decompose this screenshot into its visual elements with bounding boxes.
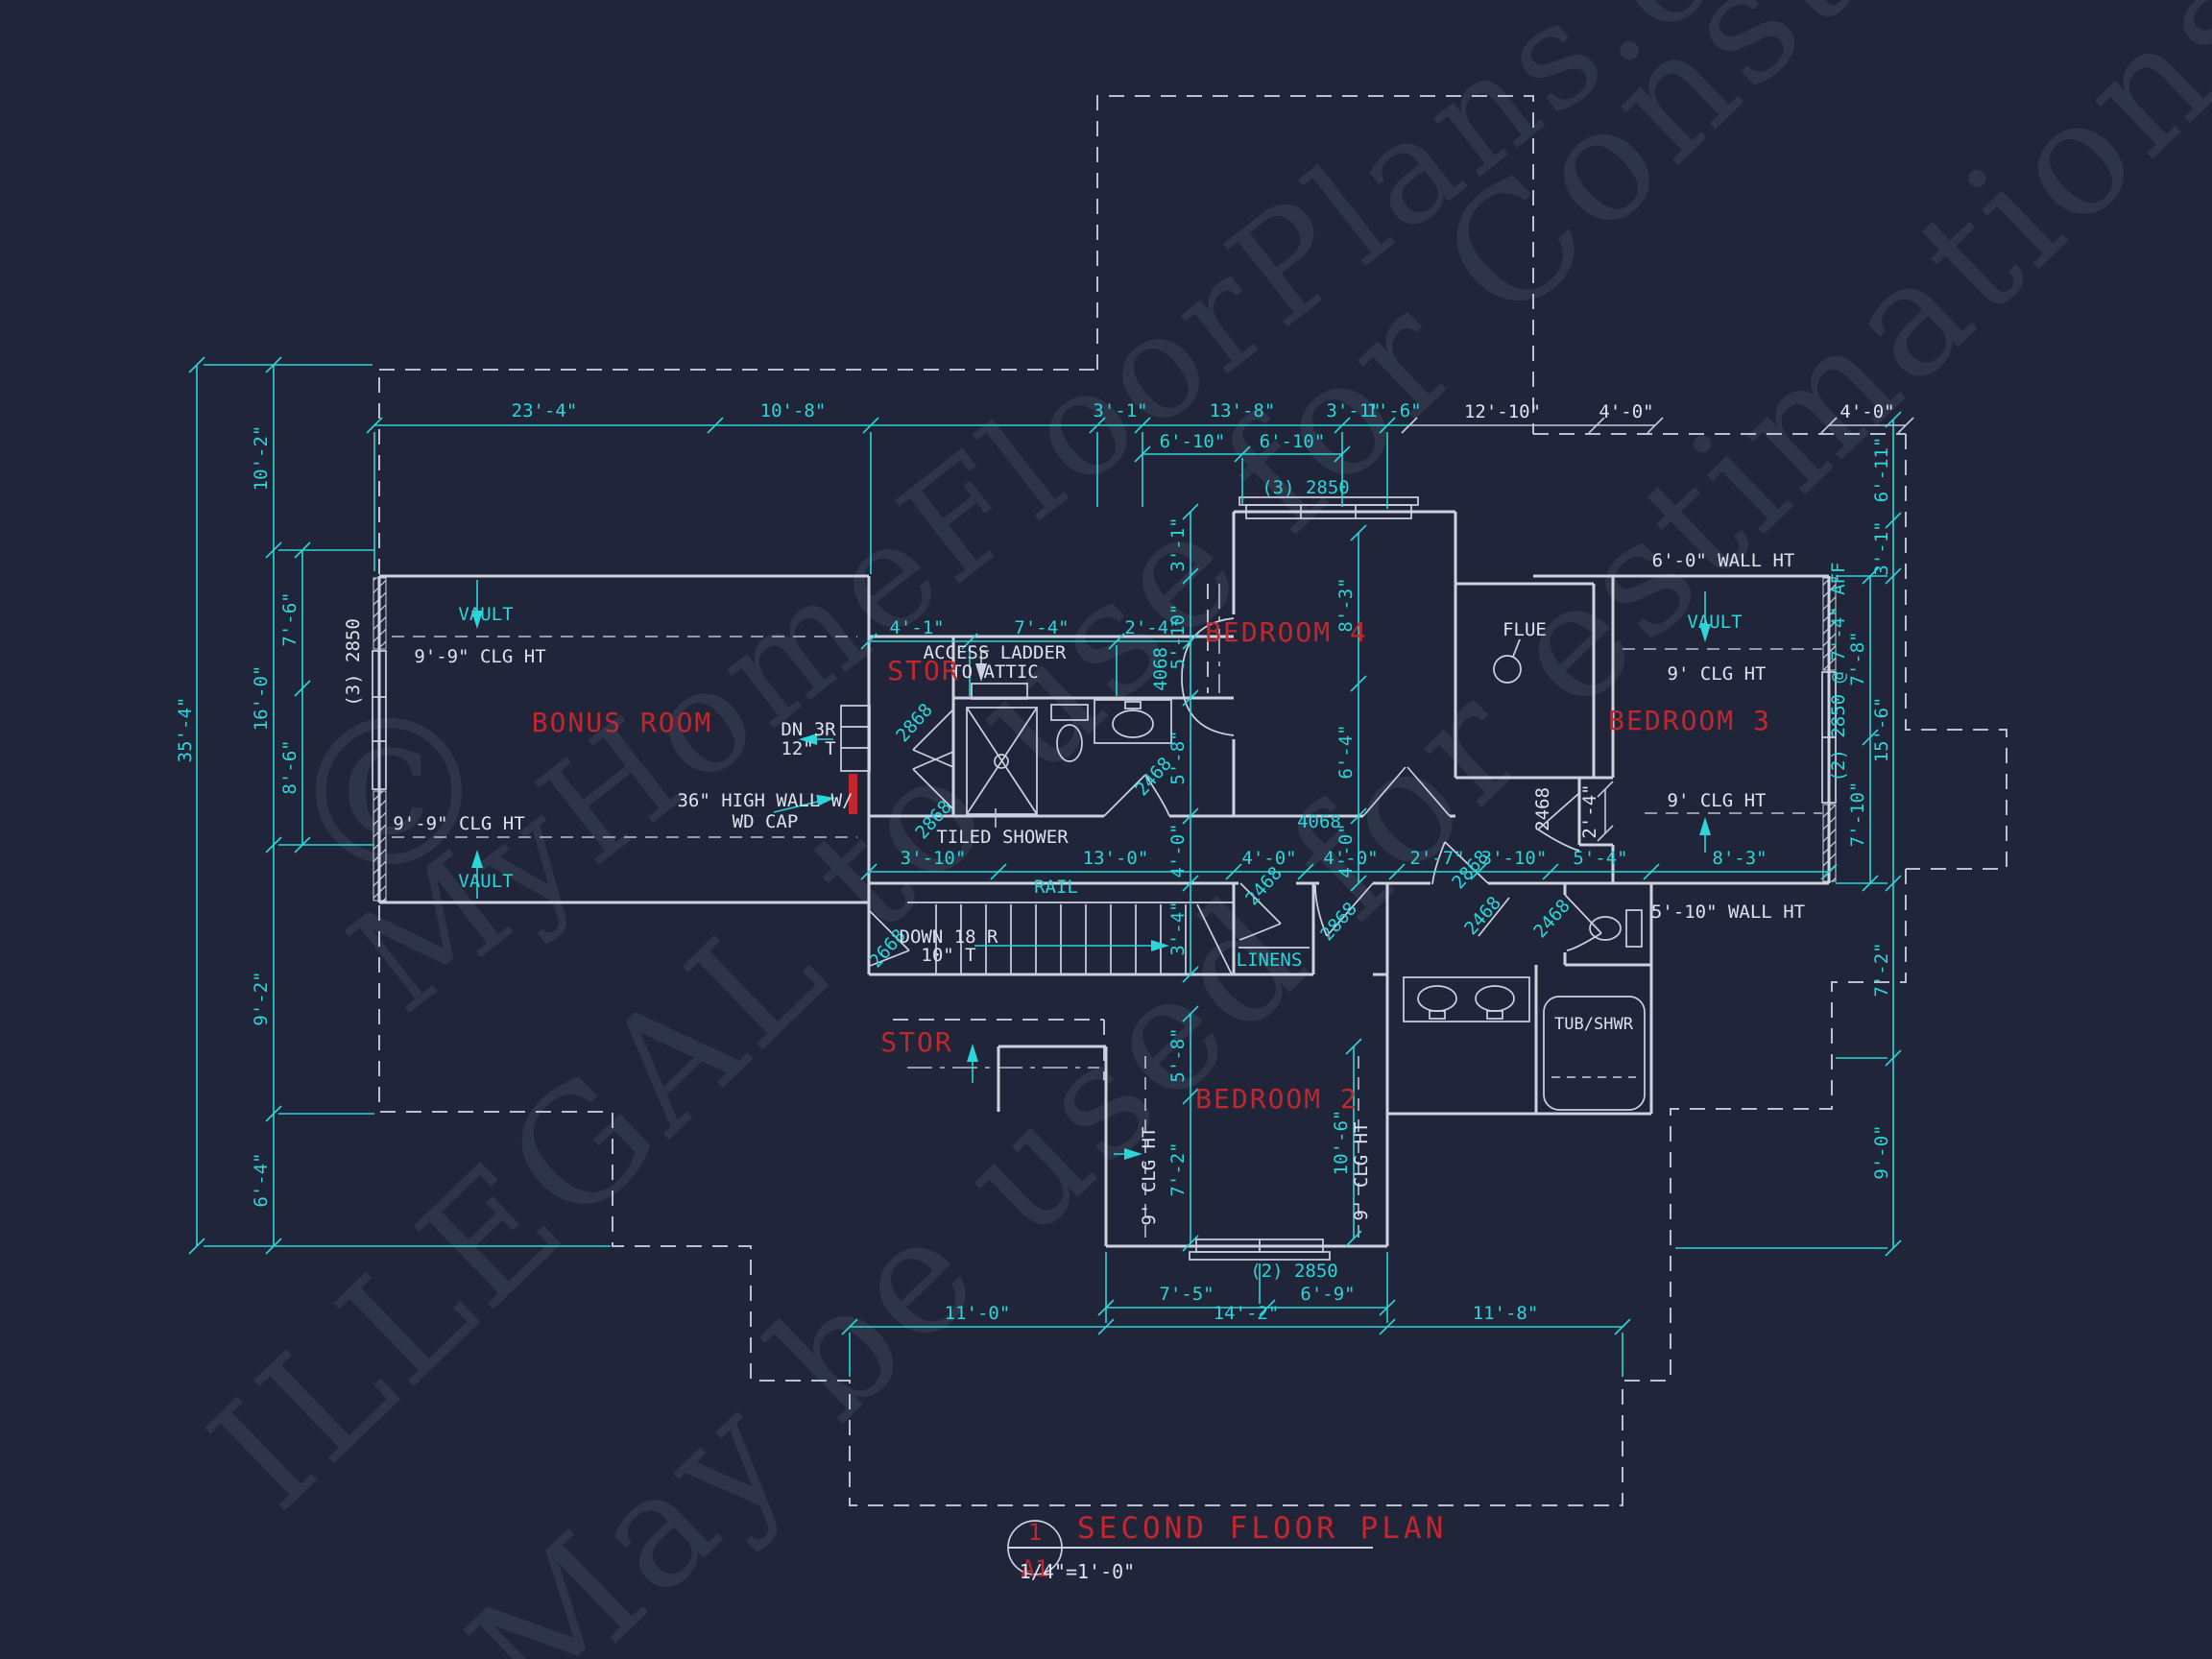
dim-top-right-2: 4'-0" [1839, 401, 1894, 422]
dim-hall-1: 13'-0" [1083, 848, 1149, 869]
dim-left-5: 9'-2" [251, 971, 272, 1025]
dim-right-2: 7'-8" [1847, 631, 1868, 685]
window-label-bedroom3: (2) 2850 @ 7'-4" AFF [1828, 563, 1849, 782]
dim-top-1: 10'-8" [760, 400, 827, 421]
room-label-bedroom4: BEDROOM 4 [1205, 616, 1368, 648]
tub [1544, 997, 1645, 1110]
dim-bottom-2: 6'-9" [1300, 1284, 1355, 1305]
second-floor-plan-drawing: © MyHomeFloorPlans.com ILLEGAL to use fo… [0, 0, 2212, 1659]
dim-left-6: 6'-4" [251, 1152, 272, 1207]
dim-top-right-0: 12'-10" [1464, 401, 1541, 422]
window-label-bonus: (3) 2850 [343, 618, 364, 707]
note-linens: LINENS [1237, 950, 1303, 971]
dim-bed4v-3: 4'-0" [1167, 823, 1189, 878]
dim-bed2-2: 10'-6" [1331, 1110, 1352, 1176]
dim-right-6: 9'-0" [1871, 1124, 1892, 1179]
double-vanity [1404, 977, 1529, 1022]
note-wall-ht-6-0: 6'-0" WALL HT [1652, 550, 1795, 571]
dim-left-0: 35'-4" [175, 697, 196, 763]
note-dn-1: DN 3R [781, 719, 836, 740]
window-label-bedroom4: (3) 2850 [1262, 477, 1350, 498]
dim-hall-6: 5'-4" [1573, 848, 1627, 869]
dim-right-4: 7'-10" [1847, 781, 1868, 848]
note-wall-ht-5-10: 5'-10" WALL HT [1651, 902, 1805, 923]
dim-left-3: 16'-0" [251, 665, 272, 732]
note-dn-2: 12" T [781, 738, 835, 759]
room-label-stor-upper: STOR [887, 655, 959, 686]
room-label-stor-lower: STOR [880, 1026, 952, 1058]
note-clg-bed2-right: 9' CLG HT [1351, 1122, 1372, 1221]
dim-bed4v-2: 5'-8" [1167, 730, 1189, 784]
note-high-wall-1: 36" HIGH WALL W/ [677, 790, 853, 811]
detail-number: 1 [1028, 1519, 1042, 1546]
dim-top-0: 23'-4" [512, 400, 578, 421]
dim-top-window-0: 6'-10" [1160, 431, 1226, 452]
door-label-bath2-inner: 2468 [1460, 893, 1505, 940]
note-vault-bonus-top: VAULT [458, 604, 513, 625]
dim-left-2: 7'-6" [279, 591, 301, 646]
dim-top-2: 3'-1" [1093, 400, 1147, 421]
dim-top-right-1: 4'-0" [1599, 401, 1653, 422]
dim-bed3-closet: 2'-4" [1579, 783, 1600, 838]
dim-bed4i-1: 6'-4" [1335, 724, 1357, 779]
dim-right-0: 6'-11" [1871, 437, 1892, 503]
dim-closet-1: 7'-4" [1014, 617, 1069, 638]
room-label-bedroom3: BEDROOM 3 [1608, 705, 1771, 736]
dim-hall-4: 2'-7" [1409, 848, 1464, 869]
note-clg-bonus-bottom: 9'-9" CLG HT [393, 813, 524, 834]
door-label-bedroom4-double: 4068 [1297, 811, 1341, 832]
dim-top-window-1: 6'-10" [1260, 431, 1326, 452]
note-clg-bed2-left: 9' CLG HT [1139, 1127, 1160, 1226]
dim-bed4v-4: 3'-4" [1167, 901, 1189, 955]
dim-bottom-3: 14'-2" [1214, 1303, 1280, 1324]
note-down-2: 10" T [921, 945, 975, 966]
note-access-2: TO ATTIC [950, 661, 1039, 683]
drawing-scale: 1/4"=1'-0" [1020, 1560, 1135, 1583]
dim-right-5: 7'-2" [1871, 942, 1892, 997]
dim-closet-0: 4'-1" [889, 617, 944, 638]
dim-left-1: 10'-2" [251, 425, 272, 492]
dim-hall-7: 8'-3" [1712, 848, 1767, 869]
dim-top-3: 13'-8" [1210, 400, 1276, 421]
dim-hall-5: 3'-10" [1481, 848, 1548, 869]
dim-bed2-0: 5'-8" [1167, 1027, 1189, 1082]
note-tub-shwr: TUB/SHWR [1554, 1015, 1634, 1034]
note-tiled-shower: TILED SHOWER [936, 827, 1069, 848]
door-label-wc: 2468 [1529, 896, 1575, 943]
dim-bottom-0: 11'-0" [945, 1303, 1011, 1324]
window-label-bedroom2: (2) 2850 [1250, 1261, 1338, 1282]
note-clg-bonus-top: 9'-9" CLG HT [414, 646, 545, 667]
room-label-bedroom2: BEDROOM 2 [1195, 1083, 1358, 1115]
dim-bed4v-0: 3'-1" [1167, 517, 1189, 571]
room-label-bonus: BONUS ROOM [532, 707, 713, 738]
drawing-title: SECOND FLOOR PLAN [1077, 1511, 1447, 1546]
note-vault-bedroom3: VAULT [1687, 612, 1742, 633]
note-vault-bonus-bottom: VAULT [458, 871, 513, 892]
dim-right-1: 3'-1" [1871, 520, 1892, 575]
dim-top-5: 1'-6" [1366, 400, 1421, 421]
note-flue: FLUE [1503, 619, 1547, 640]
dim-left-4: 8'-6" [279, 739, 301, 794]
dim-bed2-1: 7'-2" [1167, 1142, 1189, 1196]
door-label-bedroom4-hall: 4068 [1150, 647, 1171, 691]
title-block: 1 A1 SECOND FLOOR PLAN 1/4"=1'-0" [1008, 1511, 1447, 1583]
dim-hall-0: 3'-10" [901, 848, 967, 869]
note-clg-bed3-top: 9' CLG HT [1668, 663, 1767, 685]
dim-bottom-4: 11'-8" [1473, 1303, 1539, 1324]
note-high-wall-2: WD CAP [733, 811, 799, 832]
dim-right-3: 15'-6" [1871, 697, 1892, 763]
note-clg-bed3-bottom: 9' CLG HT [1668, 790, 1767, 811]
door-label-bedroom3: 2468 [1532, 787, 1553, 831]
dim-bottom-1: 7'-5" [1159, 1284, 1214, 1305]
note-rail: RAIL [1034, 877, 1078, 898]
